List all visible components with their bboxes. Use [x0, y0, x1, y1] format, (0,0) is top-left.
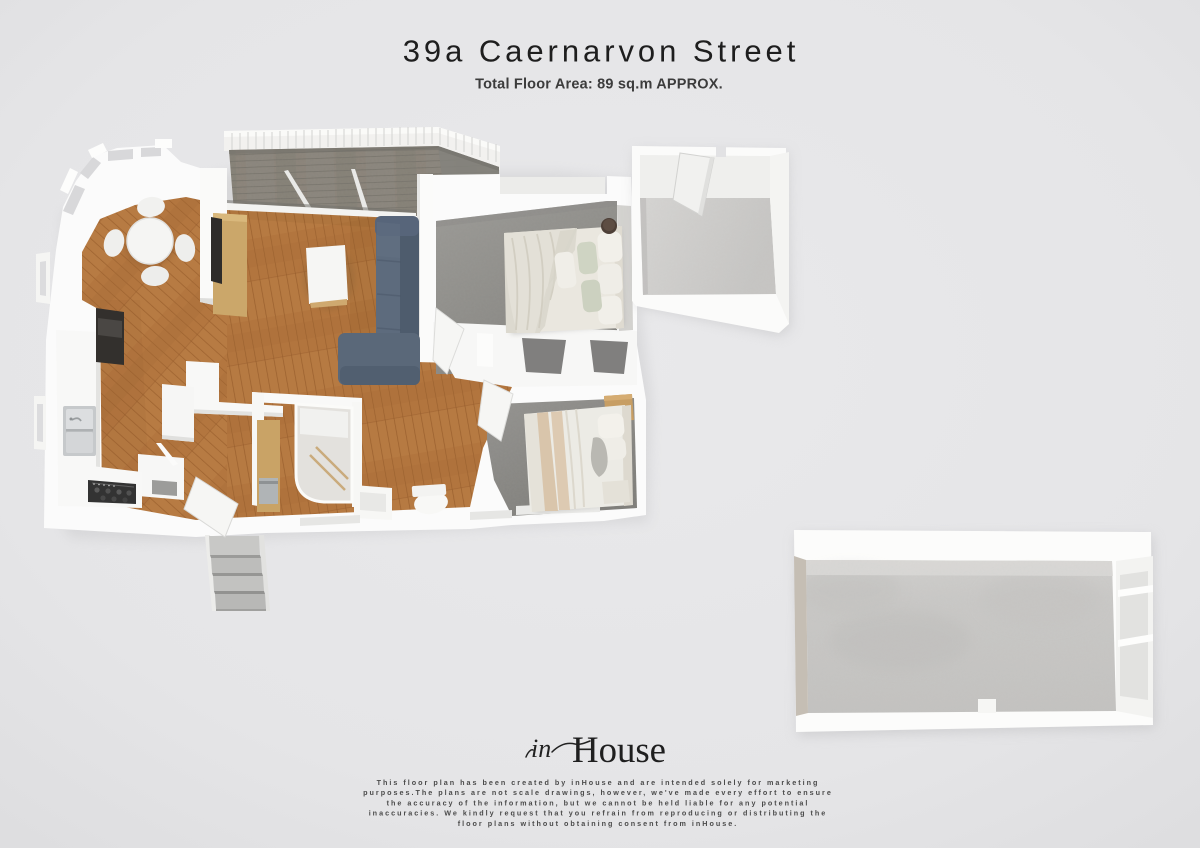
svg-text:purposes.The plans are not sca: purposes.The plans are not scale drawing…	[363, 788, 833, 797]
svg-text:House: House	[572, 730, 666, 771]
svg-text:floor plans without obtaining: floor plans without obtaining consent fr…	[458, 819, 738, 828]
svg-text:in: in	[531, 734, 551, 763]
svg-text:This floor plan has been creat: This floor plan has been created by inHo…	[377, 778, 820, 787]
svg-text:inaccuracies. We kindly reques: inaccuracies. We kindly request that you…	[369, 809, 828, 818]
svg-text:39a Caernarvon Street: 39a Caernarvon Street	[403, 34, 800, 69]
svg-text:Total Floor Area: 89 sq.m APPR: Total Floor Area: 89 sq.m APPROX.	[475, 76, 723, 92]
svg-text:the accuracy of the informatio: the accuracy of the information, but we …	[387, 798, 810, 807]
